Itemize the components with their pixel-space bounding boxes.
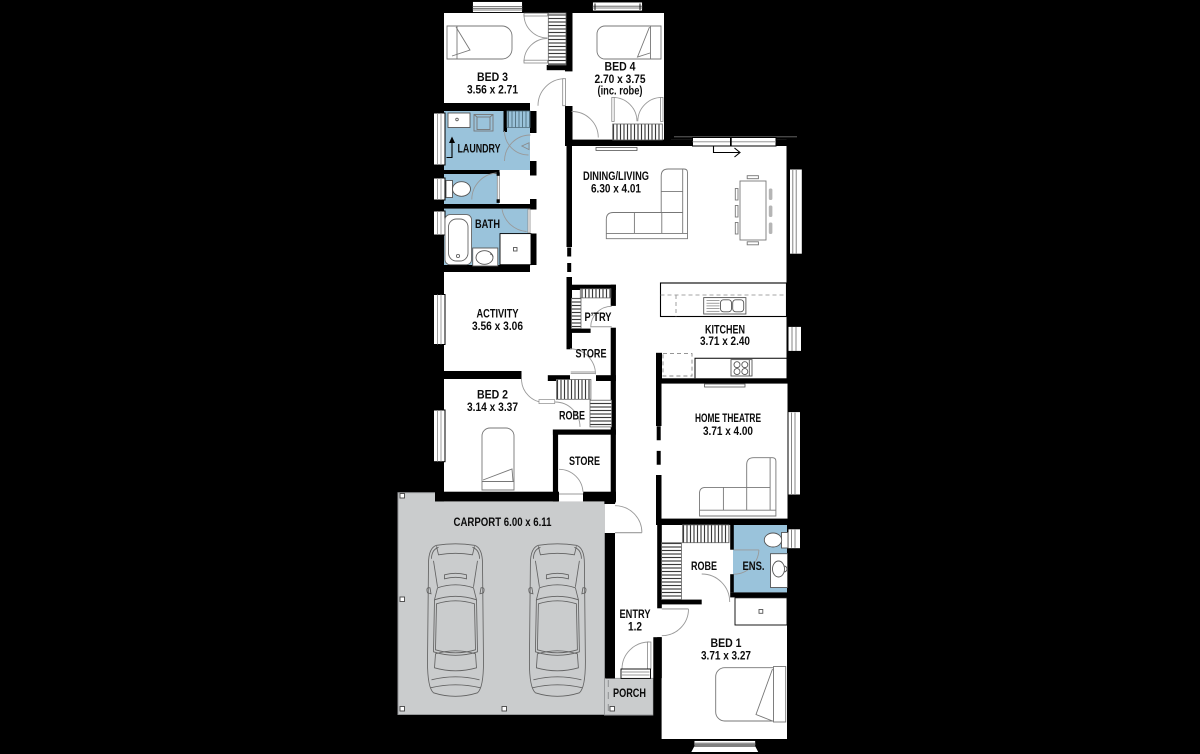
svg-text:3.56 x 3.06: 3.56 x 3.06 xyxy=(472,320,523,333)
svg-text:(inc. robe): (inc. robe) xyxy=(598,85,643,98)
svg-text:BED 1: BED 1 xyxy=(711,637,742,650)
svg-text:6.30 x 4.01: 6.30 x 4.01 xyxy=(591,182,641,195)
svg-text:BED 2: BED 2 xyxy=(477,389,508,402)
svg-text:3.71 x 3.27: 3.71 x 3.27 xyxy=(701,650,751,663)
svg-text:LAUNDRY: LAUNDRY xyxy=(458,143,501,156)
svg-text:HOME THEATRE: HOME THEATRE xyxy=(695,412,761,425)
svg-text:ACTIVITY: ACTIVITY xyxy=(477,308,519,321)
svg-text:STORE: STORE xyxy=(576,348,607,361)
svg-text:3.71 x 4.00: 3.71 x 4.00 xyxy=(703,425,753,438)
svg-text:1.2: 1.2 xyxy=(628,621,642,634)
svg-text:PORCH: PORCH xyxy=(613,687,646,700)
svg-text:DINING/LIVING: DINING/LIVING xyxy=(583,170,649,183)
svg-text:ROBE: ROBE xyxy=(559,410,585,423)
svg-text:P’TRY: P’TRY xyxy=(585,311,612,324)
svg-text:BED 4: BED 4 xyxy=(605,61,636,74)
svg-text:STORE: STORE xyxy=(569,455,600,468)
svg-text:ROBE: ROBE xyxy=(691,560,717,573)
svg-text:3.14 x 3.37: 3.14 x 3.37 xyxy=(467,401,518,414)
svg-text:CARPORT 6.00 x 6.11: CARPORT 6.00 x 6.11 xyxy=(454,516,552,529)
svg-text:BED 3: BED 3 xyxy=(477,71,508,84)
svg-text:ENTRY: ENTRY xyxy=(620,608,651,621)
svg-text:3.56 x 2.71: 3.56 x 2.71 xyxy=(467,84,518,97)
svg-text:ENS.: ENS. xyxy=(743,560,765,573)
svg-text:BATH: BATH xyxy=(475,218,500,231)
svg-text:3.71 x 2.40: 3.71 x 2.40 xyxy=(700,335,750,348)
